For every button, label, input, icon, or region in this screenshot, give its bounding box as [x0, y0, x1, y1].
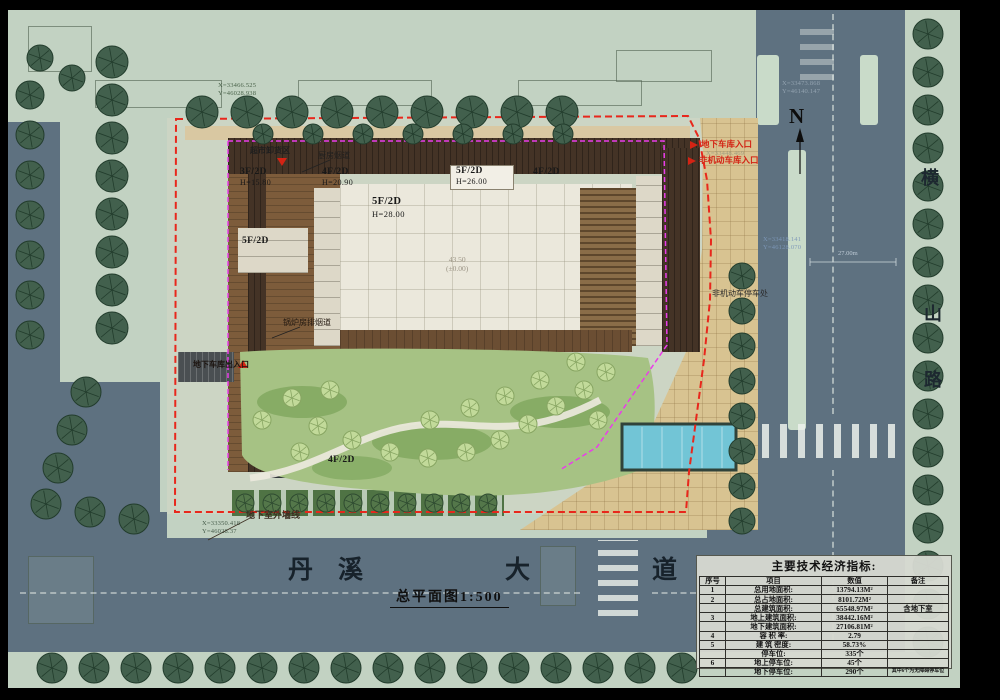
- tree-symbol: [96, 198, 128, 230]
- tree-symbol: [913, 247, 943, 277]
- tree-symbol: [913, 323, 943, 353]
- road-name-char: 横: [921, 164, 939, 190]
- tree-symbol: [503, 124, 523, 144]
- tree-symbol: [75, 497, 105, 527]
- tree-symbol: [456, 96, 488, 128]
- tree-symbol: [16, 161, 44, 189]
- spec-cell: [888, 586, 949, 595]
- tree-symbol: [119, 504, 149, 534]
- spec-cell: 5: [700, 640, 726, 649]
- spec-row: 停车位:335个: [700, 649, 949, 658]
- tree-symbol: [419, 449, 437, 467]
- tree-symbol: [16, 121, 44, 149]
- tree-symbol: [205, 653, 235, 683]
- tree-symbol: [16, 241, 44, 269]
- tree-symbol: [501, 96, 533, 128]
- level-annotation: 43.50 (±0.00): [446, 256, 468, 273]
- spec-row: 4容 积 率:2.79: [700, 631, 949, 640]
- spec-cell: 总建筑面积:: [726, 604, 822, 613]
- tree-symbol: [317, 494, 335, 512]
- tree-symbol: [547, 397, 565, 415]
- building-label-5f-w: 5F/2D: [242, 236, 269, 247]
- spec-cell: 建 筑 密度:: [726, 640, 822, 649]
- tree-symbol: [321, 381, 339, 399]
- north-arrowhead: [796, 128, 804, 142]
- spec-row: 6地上停车位:45个: [700, 658, 949, 667]
- tree-symbol: [366, 96, 398, 128]
- tree-symbol: [457, 443, 475, 461]
- tree-symbol: [597, 363, 615, 381]
- spec-col-header: 备注: [888, 577, 949, 586]
- spec-cell: [888, 595, 949, 604]
- spec-cell: [700, 604, 726, 613]
- spec-cell: 45个: [822, 658, 888, 667]
- spec-cell: [888, 658, 949, 667]
- coord-top-right: X=33473.868 Y=46140.147: [782, 80, 820, 96]
- road-name-char: 道: [652, 550, 677, 586]
- tree-symbol: [121, 653, 151, 683]
- site-plan-canvas: 地下车库入口 非机动车库入口 X=33448.469 超市卸货区 厨房烟道 锅炉…: [0, 0, 1000, 700]
- tree-symbol: [331, 653, 361, 683]
- coord-right-mid: X=33418.141 Y=46128.070: [763, 236, 801, 252]
- label-basement-wall: 地下室外墙线: [246, 510, 300, 520]
- spec-row: 地下停车位:290个其中6个为无障碍停车位: [700, 667, 949, 676]
- spec-cell: 27106.81M²: [822, 622, 888, 631]
- tree-symbol: [729, 473, 755, 499]
- tree-symbol: [519, 415, 537, 433]
- building-label-4f-n: 4F/2D H=20.90: [322, 167, 353, 190]
- tree-symbol: [479, 494, 497, 512]
- building-label-5f-n: 5F/2D H=26.00: [456, 166, 487, 189]
- spec-cell: 2: [700, 595, 726, 604]
- spec-col-header: 项目: [726, 577, 822, 586]
- tree-symbol: [913, 399, 943, 429]
- tree-symbol: [16, 81, 44, 109]
- road-name-char: 溪: [338, 550, 363, 586]
- leader-line: [272, 327, 300, 338]
- tree-symbol: [16, 321, 44, 349]
- tree-symbol: [667, 653, 697, 683]
- spec-cell: 含地下室: [888, 604, 949, 613]
- tree-symbol: [186, 96, 218, 128]
- tree-symbol: [421, 411, 439, 429]
- road-name-char: 丹: [288, 550, 313, 586]
- tree-symbol: [589, 411, 607, 429]
- tree-symbol: [96, 160, 128, 192]
- tree-symbol: [321, 96, 353, 128]
- spec-cell: 58.73%: [822, 640, 888, 649]
- tree-symbol: [16, 201, 44, 229]
- label-bike-parking: 非机动车停车处: [712, 289, 768, 298]
- tree-symbol: [163, 653, 193, 683]
- tree-symbol: [411, 96, 443, 128]
- spec-cell: 地上停车位:: [726, 658, 822, 667]
- spec-row: 总建筑面积:65548.97M²含地下室: [700, 604, 949, 613]
- tree-symbol: [729, 298, 755, 324]
- tree-symbol: [496, 387, 514, 405]
- tree-symbol: [31, 489, 61, 519]
- tree-symbol: [729, 263, 755, 289]
- tree-symbol: [353, 124, 373, 144]
- tree-symbol: [729, 403, 755, 429]
- tree-symbol: [343, 431, 361, 449]
- spec-cell: [700, 622, 726, 631]
- spec-row: 地下建筑面积:27106.81M²: [700, 622, 949, 631]
- tree-symbol: [913, 19, 943, 49]
- tree-symbol: [457, 653, 487, 683]
- tree-symbol: [371, 494, 389, 512]
- tree-symbol: [96, 236, 128, 268]
- tree-symbol: [913, 437, 943, 467]
- spec-cell: 总用地面积:: [726, 586, 822, 595]
- spec-row: 1总用地面积:13794.13M²: [700, 586, 949, 595]
- spec-cell: 65548.97M²: [822, 604, 888, 613]
- tree-symbol: [415, 653, 445, 683]
- spec-cell: [888, 631, 949, 640]
- spec-col-header: 数值: [822, 577, 888, 586]
- building-label-5f-main: 5F/2D H=28.00: [372, 196, 405, 221]
- tree-symbol: [729, 333, 755, 359]
- spec-cell: 335个: [822, 649, 888, 658]
- tree-symbol: [913, 513, 943, 543]
- tree-symbol: [403, 124, 423, 144]
- entrance-arrow: [688, 157, 696, 165]
- tree-symbol: [913, 133, 943, 163]
- spec-table-body: 1总用地面积:13794.13M²2总占地面积:8101.72M²总建筑面积:6…: [700, 586, 949, 677]
- tree-symbol: [96, 312, 128, 344]
- tree-symbol: [729, 508, 755, 534]
- pool: [622, 424, 736, 470]
- spec-cell: 3: [700, 613, 726, 622]
- tree-symbol: [289, 653, 319, 683]
- tree-symbol: [583, 653, 613, 683]
- tree-symbol: [913, 57, 943, 87]
- tree-symbol: [729, 368, 755, 394]
- spec-col-header: 序号: [700, 577, 726, 586]
- building-label-3f: 3F/2D H=15.80: [240, 167, 271, 190]
- spec-cell: 地下建筑面积:: [726, 622, 822, 631]
- spec-cell: 290个: [822, 667, 888, 676]
- tree-symbol: [59, 65, 85, 91]
- tree-symbol: [499, 653, 529, 683]
- tree-symbol: [452, 494, 470, 512]
- tree-symbol: [71, 377, 101, 407]
- spec-cell: 1: [700, 586, 726, 595]
- tree-symbol: [16, 281, 44, 309]
- tree-symbol: [461, 399, 479, 417]
- label-garage-exit: 地下车库出入口: [193, 360, 249, 369]
- tree-symbol: [729, 438, 755, 464]
- tree-symbol: [27, 45, 53, 71]
- tree-symbol: [553, 124, 573, 144]
- spec-table: 序号项目数值备注 1总用地面积:13794.13M²2总占地面积:8101.72…: [699, 576, 949, 677]
- tree-symbol: [57, 415, 87, 445]
- spec-cell: 地上建筑面积:: [726, 613, 822, 622]
- tree-symbol: [253, 411, 271, 429]
- tree-symbol: [541, 653, 571, 683]
- north-label: N: [789, 104, 804, 129]
- tree-symbol: [96, 84, 128, 116]
- spec-cell: 13794.13M²: [822, 586, 888, 595]
- tree-symbol: [309, 417, 327, 435]
- label-unload-area: 超市卸货区: [250, 146, 290, 155]
- tree-symbol: [96, 274, 128, 306]
- tree-symbol: [96, 122, 128, 154]
- tree-symbol: [913, 95, 943, 125]
- road-name-char: 大: [505, 550, 530, 586]
- coord-bottom-left: X=33350.418 Y=46028.37: [202, 520, 240, 536]
- tree-symbol: [231, 96, 263, 128]
- spec-cell: 停车位:: [726, 649, 822, 658]
- tree-symbol: [913, 209, 943, 239]
- dimension-label: 27.00m: [838, 250, 858, 257]
- spec-row: 2总占地面积:8101.72M²: [700, 595, 949, 604]
- spec-cell: [888, 640, 949, 649]
- tree-symbol: [575, 381, 593, 399]
- spec-cell: [888, 649, 949, 658]
- spec-cell: 4: [700, 631, 726, 640]
- tree-symbol: [425, 494, 443, 512]
- tree-symbol: [625, 653, 655, 683]
- tree-symbol: [79, 653, 109, 683]
- tree-symbol: [283, 389, 301, 407]
- tree-symbol: [96, 46, 128, 78]
- spec-cell: 38442.16M²: [822, 613, 888, 622]
- spec-cell: [888, 613, 949, 622]
- tree-symbol: [253, 124, 273, 144]
- entrance-arrow: [277, 158, 287, 166]
- tree-symbol: [247, 653, 277, 683]
- tree-symbol: [491, 431, 509, 449]
- spec-cell: 6: [700, 658, 726, 667]
- indicators-table-title: 主要技术经济指标:: [699, 558, 949, 574]
- spec-cell: 总占地面积:: [726, 595, 822, 604]
- spec-row: 3地上建筑面积:38442.16M²: [700, 613, 949, 622]
- spec-cell: 8101.72M²: [822, 595, 888, 604]
- tree-symbol: [531, 371, 549, 389]
- label-boiler-flue: 锅炉房排烟道: [283, 318, 331, 327]
- road-name-char: 路: [924, 366, 942, 392]
- spec-cell: [700, 667, 726, 676]
- spec-cell: 其中6个为无障碍停车位: [888, 667, 949, 676]
- spec-cell: 2.79: [822, 631, 888, 640]
- tree-symbol: [398, 494, 416, 512]
- tree-symbol: [453, 124, 473, 144]
- building-label-4f-ne: 4F/2D: [533, 167, 560, 178]
- spec-row: 5建 筑 密度:58.73%: [700, 640, 949, 649]
- label-kitchen-flue: 厨房烟道: [318, 151, 350, 160]
- spec-cell: 地下停车位:: [726, 667, 822, 676]
- tree-symbol: [546, 96, 578, 128]
- drawing-title: 总平面图1:500: [390, 586, 509, 608]
- coord-entrance: X=33448.469: [706, 150, 744, 158]
- road-name-char: 山: [924, 300, 942, 326]
- spec-cell: 容 积 率:: [726, 631, 822, 640]
- tree-symbol: [276, 96, 308, 128]
- entrance-arrow: [690, 141, 698, 149]
- tree-symbol: [381, 443, 399, 461]
- spec-cell: [888, 622, 949, 631]
- tree-symbol: [913, 475, 943, 505]
- tree-symbol: [567, 353, 585, 371]
- tree-symbol: [291, 443, 309, 461]
- spec-table-header: 序号项目数值备注: [700, 577, 949, 586]
- coord-top-left: X=33466.525 Y=46028.938: [218, 82, 256, 98]
- tree-symbol: [344, 494, 362, 512]
- spec-cell: [700, 649, 726, 658]
- label-garage-entrance: 地下车库入口: [701, 140, 752, 150]
- building-label-4f-s: 4F/2D: [328, 455, 355, 466]
- tree-symbol: [43, 453, 73, 483]
- indicators-table-block: 主要技术经济指标: 序号项目数值备注 1总用地面积:13794.13M²2总占地…: [696, 555, 952, 669]
- tree-symbol: [373, 653, 403, 683]
- tree-symbol: [37, 653, 67, 683]
- tree-symbol: [303, 124, 323, 144]
